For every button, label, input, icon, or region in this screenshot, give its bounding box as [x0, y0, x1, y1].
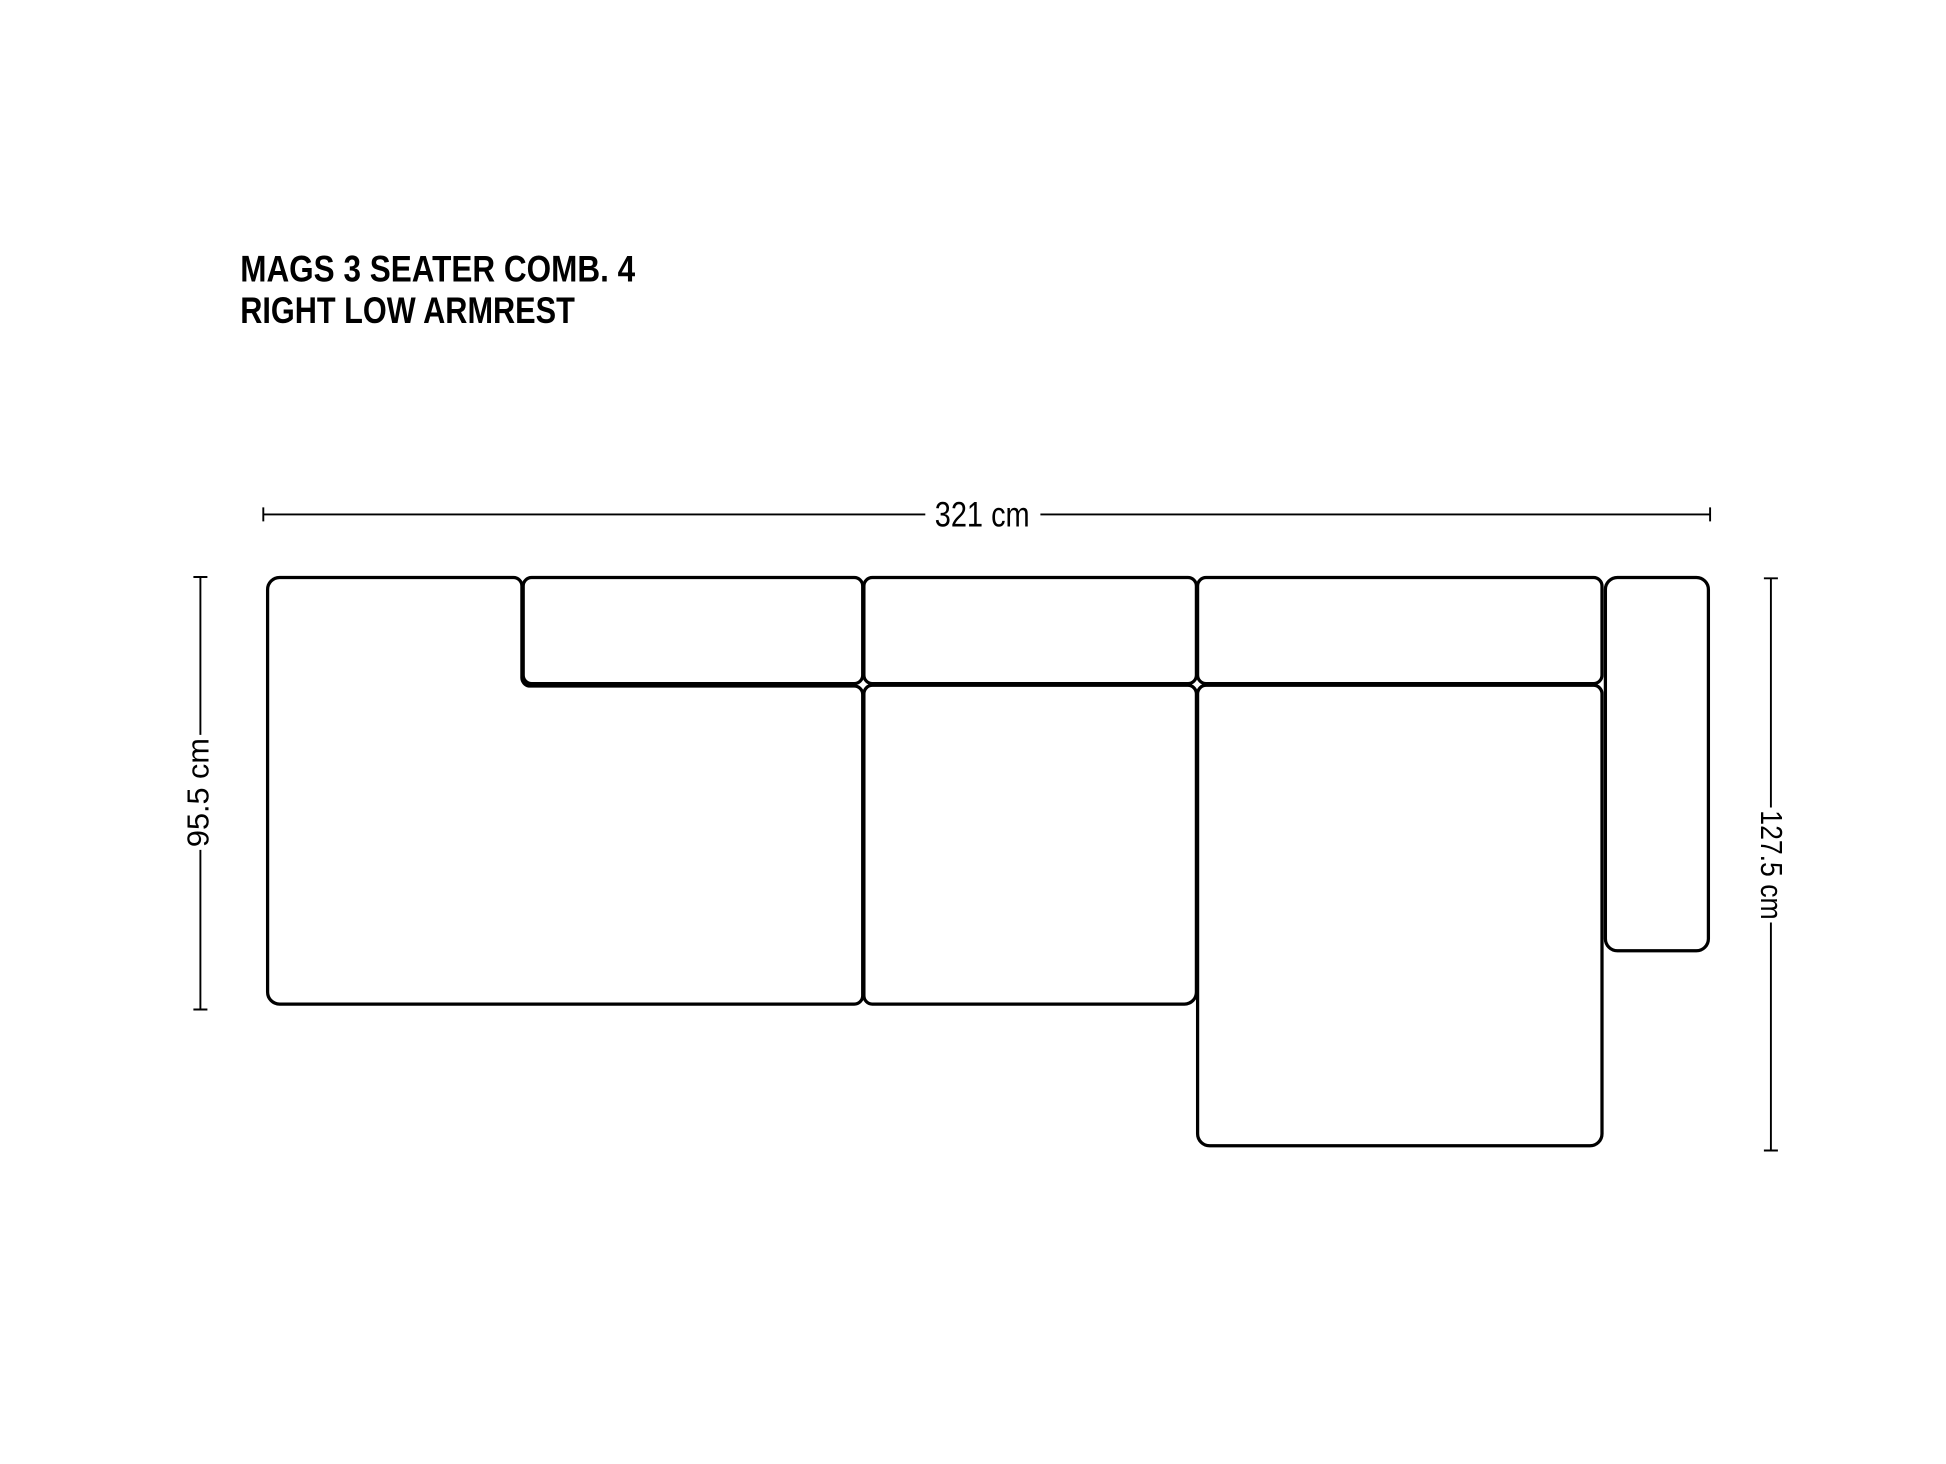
svg-text:127.5 cm: 127.5 cm — [1753, 810, 1787, 919]
svg-text:RIGHT LOW ARMREST: RIGHT LOW ARMREST — [240, 290, 575, 331]
svg-text:95.5 cm: 95.5 cm — [182, 738, 216, 847]
svg-text:MAGS 3 SEATER COMB. 4: MAGS 3 SEATER COMB. 4 — [240, 249, 635, 290]
svg-text:321 cm: 321 cm — [935, 495, 1030, 534]
